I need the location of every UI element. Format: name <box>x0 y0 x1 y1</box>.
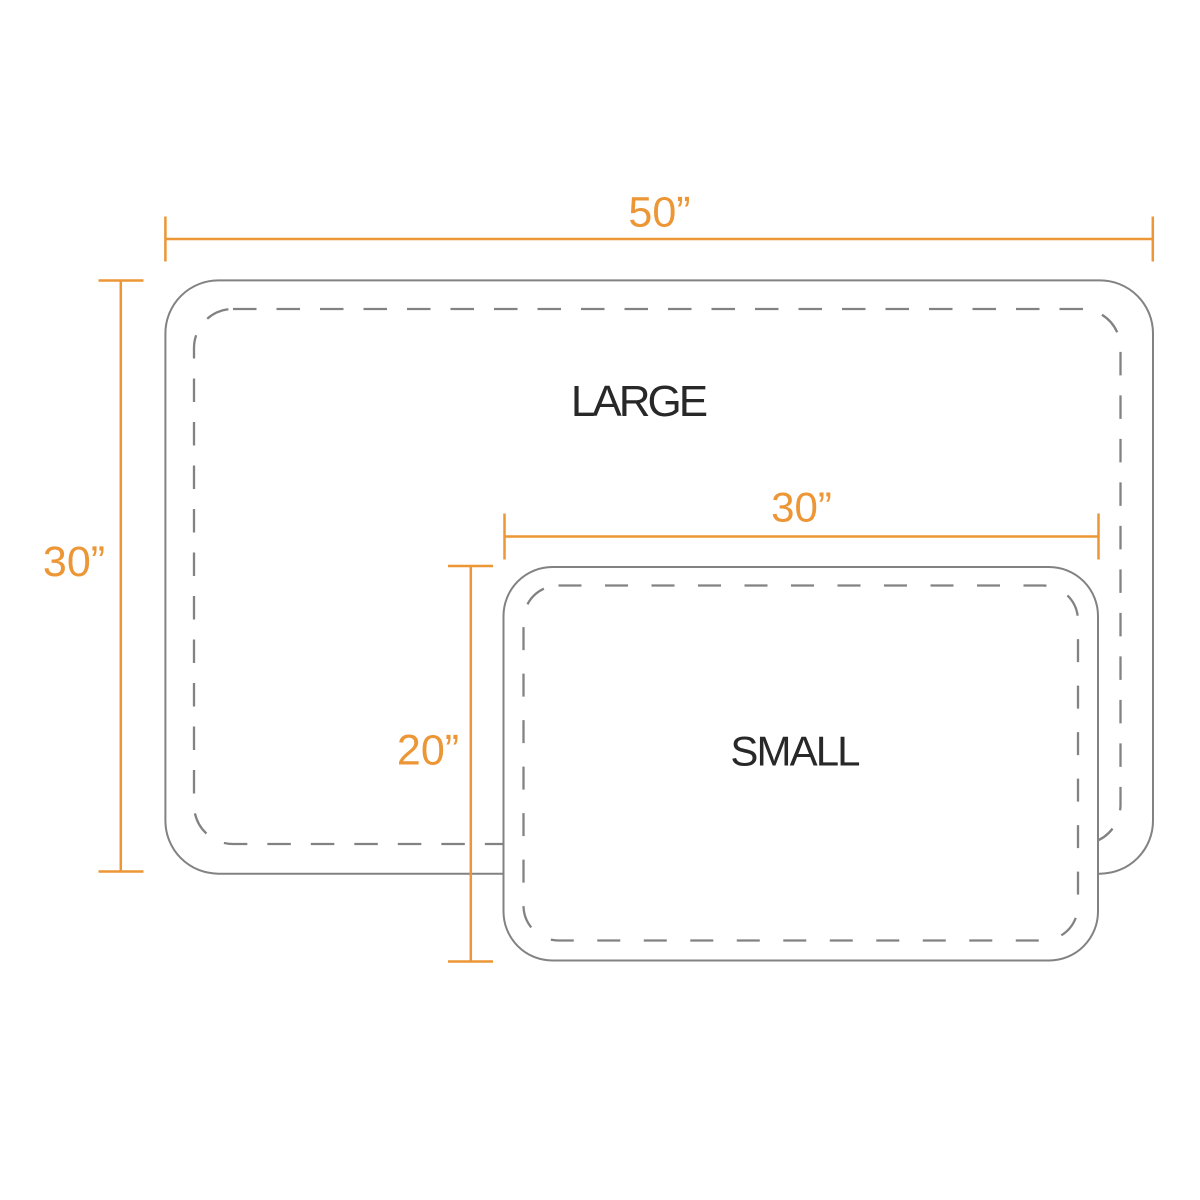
svg-text:SMALL: SMALL <box>730 728 859 775</box>
svg-text:30”: 30” <box>43 538 105 586</box>
svg-text:30”: 30” <box>771 484 832 531</box>
svg-text:50”: 50” <box>628 189 690 237</box>
svg-text:LARGE: LARGE <box>571 377 707 426</box>
svg-text:20”: 20” <box>397 727 459 775</box>
